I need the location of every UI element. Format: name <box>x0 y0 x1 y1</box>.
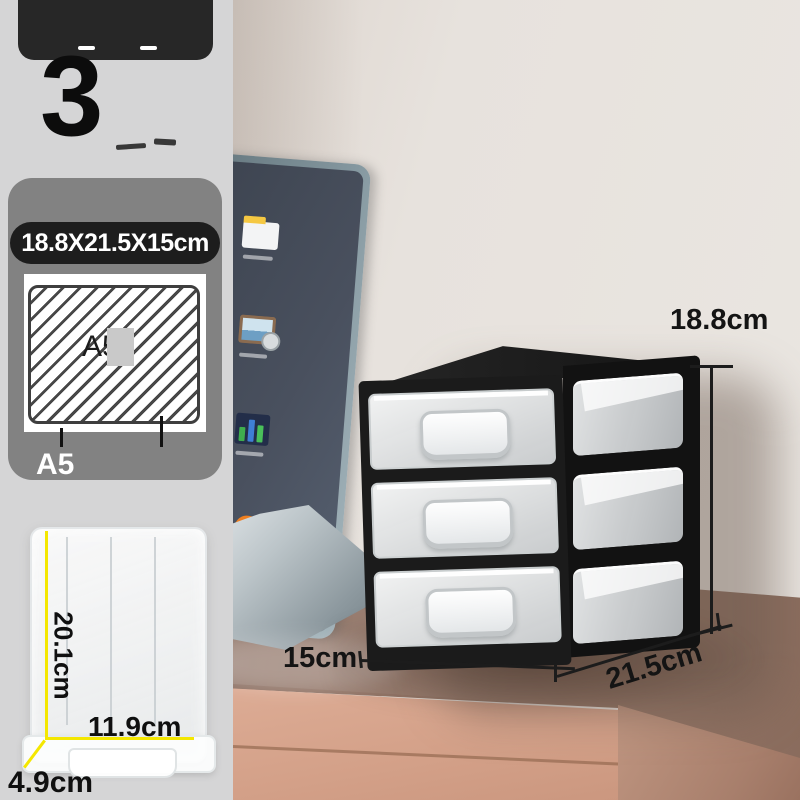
drawer-handle <box>420 409 511 460</box>
height-dimension-line <box>710 366 713 634</box>
drawer-handle <box>425 587 516 638</box>
erased-text-mark <box>154 138 176 145</box>
drawer-handle <box>422 498 513 549</box>
dimensions-pill: 18.8X21.5X15cm <box>10 222 220 264</box>
depth-dimension-label: 15cm <box>283 642 357 675</box>
side-drawer-opening <box>573 467 683 551</box>
bar-chart-icon <box>234 413 270 447</box>
width-line-left-tick <box>554 664 557 682</box>
magnifier-icon <box>261 331 281 351</box>
drawer-ridge <box>110 537 112 725</box>
picture-icon <box>238 314 276 345</box>
height-dimension-label: 18.8cm <box>670 304 768 337</box>
a5-size-label: A5 <box>36 448 74 482</box>
product-showcase-image: 18.8cm 15cm 21.5cm 3 18.8X21.5X15cm A5 A… <box>0 0 800 800</box>
side-drawer-opening <box>573 561 683 645</box>
icon-caption <box>235 451 263 457</box>
side-drawer-opening <box>573 373 683 457</box>
drawer-3 <box>373 566 561 648</box>
drawer-height-label: 4.9cm <box>8 766 93 800</box>
icon-caption <box>239 353 267 359</box>
pointer-line <box>60 428 63 447</box>
drawer-ridge <box>154 537 156 725</box>
banner-dash <box>140 46 157 50</box>
drawer-1 <box>368 388 556 470</box>
drawer-2 <box>371 477 559 559</box>
watermark-patch <box>107 328 134 366</box>
pointer-line <box>160 416 163 447</box>
drawer-width-label: 11.9cm <box>88 711 181 743</box>
organizer-side-face <box>563 355 700 658</box>
folder-icon <box>242 220 280 250</box>
height-line-top-cap <box>690 365 733 368</box>
icon-caption <box>243 255 273 261</box>
tier-count-number: 3 <box>40 40 103 154</box>
organizer-front-face <box>358 375 571 671</box>
drawer-depth-label: 20.1cm <box>48 611 79 701</box>
product-photo-scene: 18.8cm 15cm 21.5cm <box>233 0 800 800</box>
